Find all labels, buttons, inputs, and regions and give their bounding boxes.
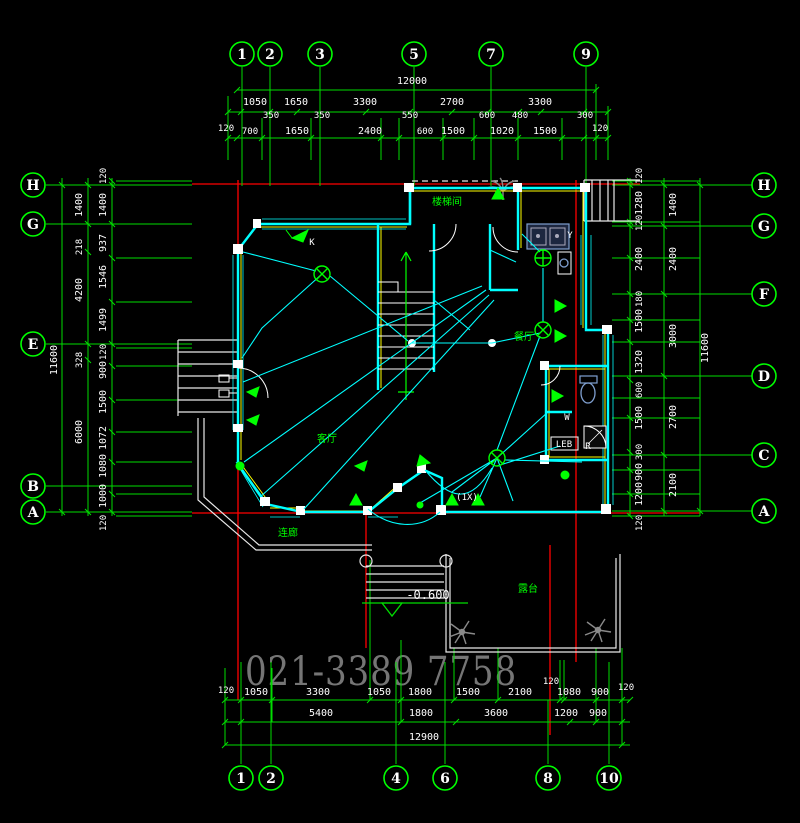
dimensions-left: 120 1400 937 1546 1499 120 900 1500 1072… bbox=[49, 168, 109, 531]
dim-label: 1050 bbox=[367, 687, 391, 698]
dim-label: 120 bbox=[99, 515, 109, 531]
level-marker: -0.600 bbox=[362, 588, 468, 616]
dim-label: 120 bbox=[635, 515, 645, 531]
dim-label: 120 bbox=[635, 168, 645, 184]
room-label-porch: 连廊 bbox=[278, 526, 298, 539]
dim-label: 1500 bbox=[634, 406, 645, 430]
dim-label: 600 bbox=[417, 127, 433, 137]
wiring-layer bbox=[242, 234, 582, 524]
dim-label: 1546 bbox=[98, 265, 109, 289]
dim-label: 1200 bbox=[634, 482, 645, 506]
grid-bubble-top: 2 bbox=[265, 47, 275, 63]
dim-label: 1080 bbox=[557, 687, 581, 698]
dim-label: 937 bbox=[98, 234, 109, 252]
grid-bubble-right: G bbox=[758, 219, 770, 235]
dim-label: 3600 bbox=[484, 708, 508, 719]
dim-label: 550 bbox=[402, 111, 418, 121]
grid-bubble-left: H bbox=[26, 178, 39, 194]
dim-label: 900 bbox=[634, 463, 645, 481]
dim-label: 120 bbox=[618, 683, 634, 693]
dim-label: 1500 bbox=[634, 309, 645, 333]
room-label-terrace: 露台 bbox=[518, 582, 538, 595]
dim-left-total: 11600 bbox=[49, 345, 60, 375]
floor-plan-canvas: 021-3389 7758 bbox=[0, 0, 800, 823]
room-label-stair-hall: 楼梯间 bbox=[432, 195, 462, 208]
grid-bubble-bottom: 6 bbox=[440, 771, 450, 787]
grid-bubble-right: D bbox=[758, 369, 770, 385]
dim-label: 2700 bbox=[668, 405, 679, 429]
grid-bubble-right: A bbox=[758, 504, 771, 520]
dim-label: 700 bbox=[242, 127, 258, 137]
grid-bubble-top: 1 bbox=[237, 47, 247, 63]
dim-label: 2700 bbox=[440, 97, 464, 108]
appliance-box bbox=[558, 252, 571, 274]
grid-bubble-top: 5 bbox=[409, 47, 419, 63]
dim-label: 300 bbox=[635, 444, 645, 460]
dim-label: 1200 bbox=[554, 708, 578, 719]
dim-label: 1072 bbox=[98, 426, 109, 450]
grid-bubble-bottom: 8 bbox=[543, 771, 553, 787]
grid-bubble-top: 3 bbox=[315, 47, 325, 63]
dim-label: 120 bbox=[592, 124, 608, 134]
dim-label: 480 bbox=[512, 111, 528, 121]
dim-label: 900 bbox=[98, 361, 109, 379]
splat-symbol bbox=[449, 621, 475, 644]
dim-label: 1500 bbox=[456, 687, 480, 698]
dim-label: 1080 bbox=[98, 454, 109, 478]
dim-label: 3000 bbox=[668, 324, 679, 348]
dim-label: 1320 bbox=[634, 350, 645, 374]
dim-label: 1050 bbox=[243, 97, 267, 108]
dim-label: 120 bbox=[635, 215, 645, 231]
grid-bubble-left: A bbox=[27, 505, 40, 521]
y-label: Y bbox=[567, 231, 573, 241]
dim-label: 2400 bbox=[634, 247, 645, 271]
grid-bubble-left: E bbox=[28, 337, 39, 353]
grid-bubble-top: 9 bbox=[581, 47, 591, 63]
r-label: R bbox=[585, 442, 591, 452]
dim-label: 6000 bbox=[74, 420, 85, 444]
wall-outlets bbox=[219, 375, 237, 397]
dim-label: 600 bbox=[479, 111, 495, 121]
dim-label: 600 bbox=[635, 382, 645, 398]
dim-label: 120 bbox=[218, 124, 234, 134]
dim-label: 300 bbox=[577, 111, 593, 121]
leb-label: LEB bbox=[556, 440, 572, 450]
dim-label: 5400 bbox=[309, 708, 333, 719]
dim-label: 120 bbox=[99, 344, 109, 360]
grid-bubble-left: B bbox=[27, 479, 39, 495]
dim-bottom-total: 12900 bbox=[409, 732, 439, 743]
level-value: -0.600 bbox=[406, 588, 449, 602]
dim-label: 218 bbox=[75, 239, 85, 255]
switch-k-label: K bbox=[309, 238, 315, 248]
dim-label: 120 bbox=[99, 168, 109, 184]
dimensions-top: 12000 1050 1650 3300 2700 3300 350 350 5… bbox=[218, 76, 608, 137]
grid-bubble-bottom: 2 bbox=[266, 771, 276, 787]
dim-label: 180 bbox=[635, 291, 645, 307]
stair-direction-arrow bbox=[398, 252, 414, 400]
dim-label: 1500 bbox=[98, 390, 109, 414]
dim-label: 1500 bbox=[533, 126, 557, 137]
dim-label: 2400 bbox=[358, 126, 382, 137]
dim-label: 1650 bbox=[284, 97, 308, 108]
stair-layer bbox=[378, 252, 434, 400]
dim-right-total: 11600 bbox=[700, 333, 711, 363]
dim-label: 1020 bbox=[490, 126, 514, 137]
grid-bubble-bottom: 4 bbox=[391, 771, 401, 787]
grid-bubble-top: 7 bbox=[486, 47, 496, 63]
room-label-dining: 餐厅 bbox=[514, 330, 534, 343]
dim-label: 2100 bbox=[508, 687, 532, 698]
dim-label: 1800 bbox=[409, 708, 433, 719]
dim-label: 1000 bbox=[98, 484, 109, 508]
dim-label: 1400 bbox=[98, 193, 109, 217]
dim-label: 1500 bbox=[441, 126, 465, 137]
toilet bbox=[580, 376, 597, 403]
w-label: W bbox=[564, 413, 570, 423]
x1-label: (1X) bbox=[456, 493, 478, 503]
dim-label: 900 bbox=[589, 708, 607, 719]
dim-label: 3300 bbox=[528, 97, 552, 108]
dim-label: 120 bbox=[543, 677, 559, 687]
door-arcs bbox=[238, 224, 560, 398]
grid-bubble-left: G bbox=[27, 217, 39, 233]
splat-symbol bbox=[585, 619, 611, 642]
room-label-living: 客厅 bbox=[317, 432, 337, 445]
dim-label: 1499 bbox=[98, 308, 109, 332]
cad-floor-plan-screenshot: 021-3389 7758 bbox=[0, 0, 800, 823]
dim-label: 328 bbox=[75, 352, 85, 368]
dim-label: 1280 bbox=[634, 191, 645, 215]
dim-label: 2100 bbox=[668, 473, 679, 497]
dim-label: 350 bbox=[263, 111, 279, 121]
dim-label: 350 bbox=[314, 111, 330, 121]
dim-label: 1800 bbox=[408, 687, 432, 698]
dim-label: 1400 bbox=[74, 193, 85, 217]
dim-label: 1650 bbox=[285, 126, 309, 137]
dim-label: 2400 bbox=[668, 247, 679, 271]
dim-top-total: 12000 bbox=[397, 76, 427, 87]
dim-label: 1050 bbox=[244, 687, 268, 698]
dim-label: 120 bbox=[218, 686, 234, 696]
grid-bubble-bottom: 10 bbox=[599, 771, 619, 787]
grid-bubble-right: F bbox=[759, 287, 769, 303]
dim-label: 3300 bbox=[353, 97, 377, 108]
exterior-white-layer bbox=[178, 180, 640, 652]
dim-label: 1400 bbox=[668, 193, 679, 217]
grid-bubble-right: C bbox=[758, 448, 769, 464]
dim-label: 4200 bbox=[74, 278, 85, 302]
grid-bubble-bottom: 1 bbox=[236, 771, 246, 787]
grid-bubble-right: H bbox=[757, 178, 770, 194]
dim-label: 3300 bbox=[306, 687, 330, 698]
dim-label: 900 bbox=[591, 687, 609, 698]
